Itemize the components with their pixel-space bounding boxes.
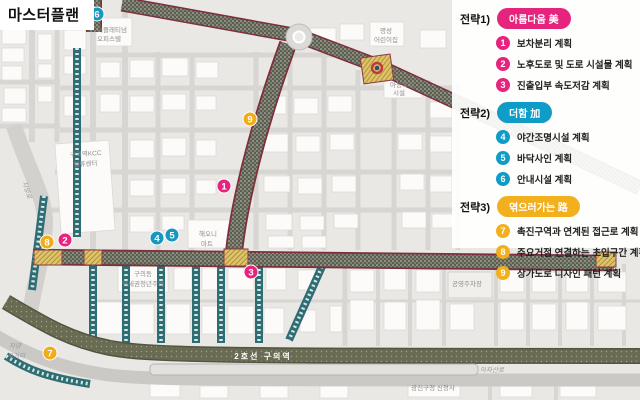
legend-item-2: 2 노후도로 및 도로 시설물 계획 [496, 57, 640, 71]
legend-item-5: 5 바닥사인 계획 [496, 151, 640, 165]
legend-item-9: 9 상가도로 디자인 패턴 계획 [496, 266, 640, 280]
legend-item-4: 4 야간조명시설 계획 [496, 130, 640, 144]
svg-text:4: 4 [154, 233, 160, 244]
legend-num-2: 2 [496, 57, 510, 71]
legend-num-9: 9 [496, 266, 510, 280]
svg-text:어린이집: 어린이집 [374, 35, 398, 44]
svg-text:7: 7 [47, 348, 52, 359]
strategy-3-badge: 엮으러가는 路 [497, 196, 580, 217]
map-badge-2: 2 [58, 233, 72, 247]
strategy-3-label: 전략3) [460, 199, 490, 215]
jayang-cross-label: 자양 [9, 342, 22, 350]
svg-text:사거리: 사거리 [7, 352, 26, 360]
page-title: 마스터플랜 [0, 0, 94, 30]
svg-text:1: 1 [221, 181, 227, 192]
strategy-2-label: 전략2) [460, 105, 490, 121]
youth-housing-label: 구의동 [134, 269, 152, 278]
map-badge-8: 8 [40, 235, 54, 249]
legend-num-1: 1 [496, 36, 510, 50]
legend-num-7: 7 [496, 224, 510, 238]
gu-office-label: 광진구청 신청사 [411, 383, 455, 392]
svg-text:시설: 시설 [393, 89, 405, 97]
map-badge-7: 7 [43, 346, 57, 360]
legend-item-3: 3 진출입부 속도저감 계획 [496, 78, 640, 92]
legend-item-6: 6 안내시설 계획 [496, 172, 640, 186]
svg-text:2: 2 [62, 235, 67, 246]
map-badge-5: 5 [165, 228, 179, 242]
svg-text:5: 5 [169, 230, 175, 241]
officetel-label: 더플래티넘 [97, 25, 127, 34]
svg-text:6: 6 [94, 9, 99, 20]
legend-item-8: 8 주요거점 연결하는 초입구간 계획 [496, 245, 640, 259]
legend-panel: 전략1) 아름다움 美 1 보차분리 계획 2 노후도로 및 도로 시설물 계획… [452, 0, 640, 248]
svg-text:9: 9 [247, 114, 252, 125]
map-badge-9: 9 [243, 112, 257, 126]
legend-item-1: 1 보차분리 계획 [496, 36, 640, 50]
legend-num-6: 6 [496, 172, 510, 186]
parking-label: 공영주차장 [452, 279, 482, 288]
roundabout [286, 24, 312, 50]
achasan-ro-label: 아차산로 [480, 366, 505, 374]
kindergarten-label: 명성 [380, 26, 392, 35]
map-badge-1: 1 [217, 179, 231, 193]
svg-text:역세권청년주택: 역세권청년주택 [122, 279, 164, 288]
map-badge-3: 3 [244, 265, 258, 279]
svg-text:8: 8 [44, 237, 49, 248]
legend-num-3: 3 [496, 78, 510, 92]
map-badge-4: 4 [150, 231, 164, 245]
svg-text:마트: 마트 [201, 239, 213, 248]
strategy-1-header: 전략1) 아름다움 美 [460, 8, 640, 29]
legend-num-5: 5 [496, 151, 510, 165]
station-platform [150, 364, 478, 375]
strategy-1-label: 전략1) [460, 11, 490, 27]
legend-item-7: 7 촉진구역과 연계된 접근로 계획 [496, 224, 640, 238]
welfare-facility-label: 아동복지 [390, 80, 414, 89]
legend-num-8: 8 [496, 245, 510, 259]
strategy-3-header: 전략3) 엮으러가는 路 [460, 196, 640, 217]
strategy-2-header: 전략2) 더함 加 [460, 102, 640, 123]
svg-text:3: 3 [248, 267, 253, 278]
strategy-1-badge: 아름다움 美 [497, 8, 571, 29]
masterplan-map: 더플래티넘 오피스텔 명성 어린이집 아동복지 시설 구의역KCC 밸류센터 해… [0, 0, 640, 400]
legend-num-4: 4 [496, 130, 510, 144]
station-label: 2호선 구의역 [234, 351, 291, 361]
svg-text:오피스텔: 오피스텔 [97, 34, 121, 43]
mart-label: 해오니 [199, 229, 217, 238]
strategy-2-badge: 더함 加 [497, 102, 552, 123]
